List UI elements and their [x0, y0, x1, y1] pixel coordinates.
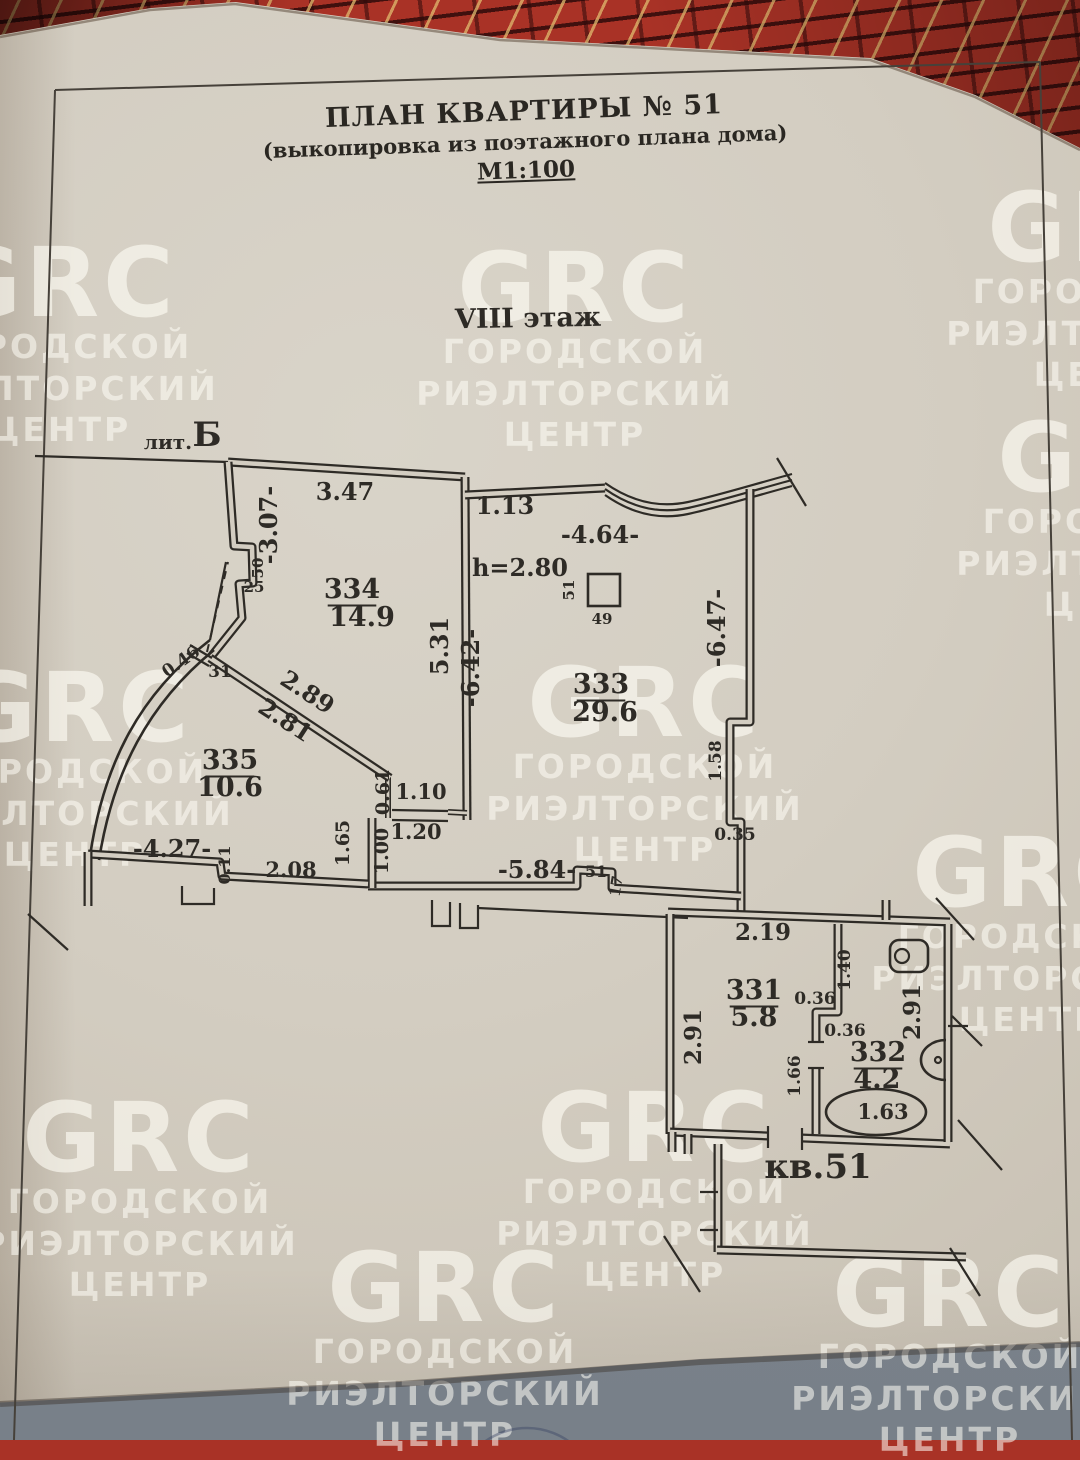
photo-of-floor-plan-document: { "document": { "title": "ПЛАН КВАРТИРЫ … — [0, 0, 1080, 1440]
photo-vignette — [0, 0, 1080, 1440]
